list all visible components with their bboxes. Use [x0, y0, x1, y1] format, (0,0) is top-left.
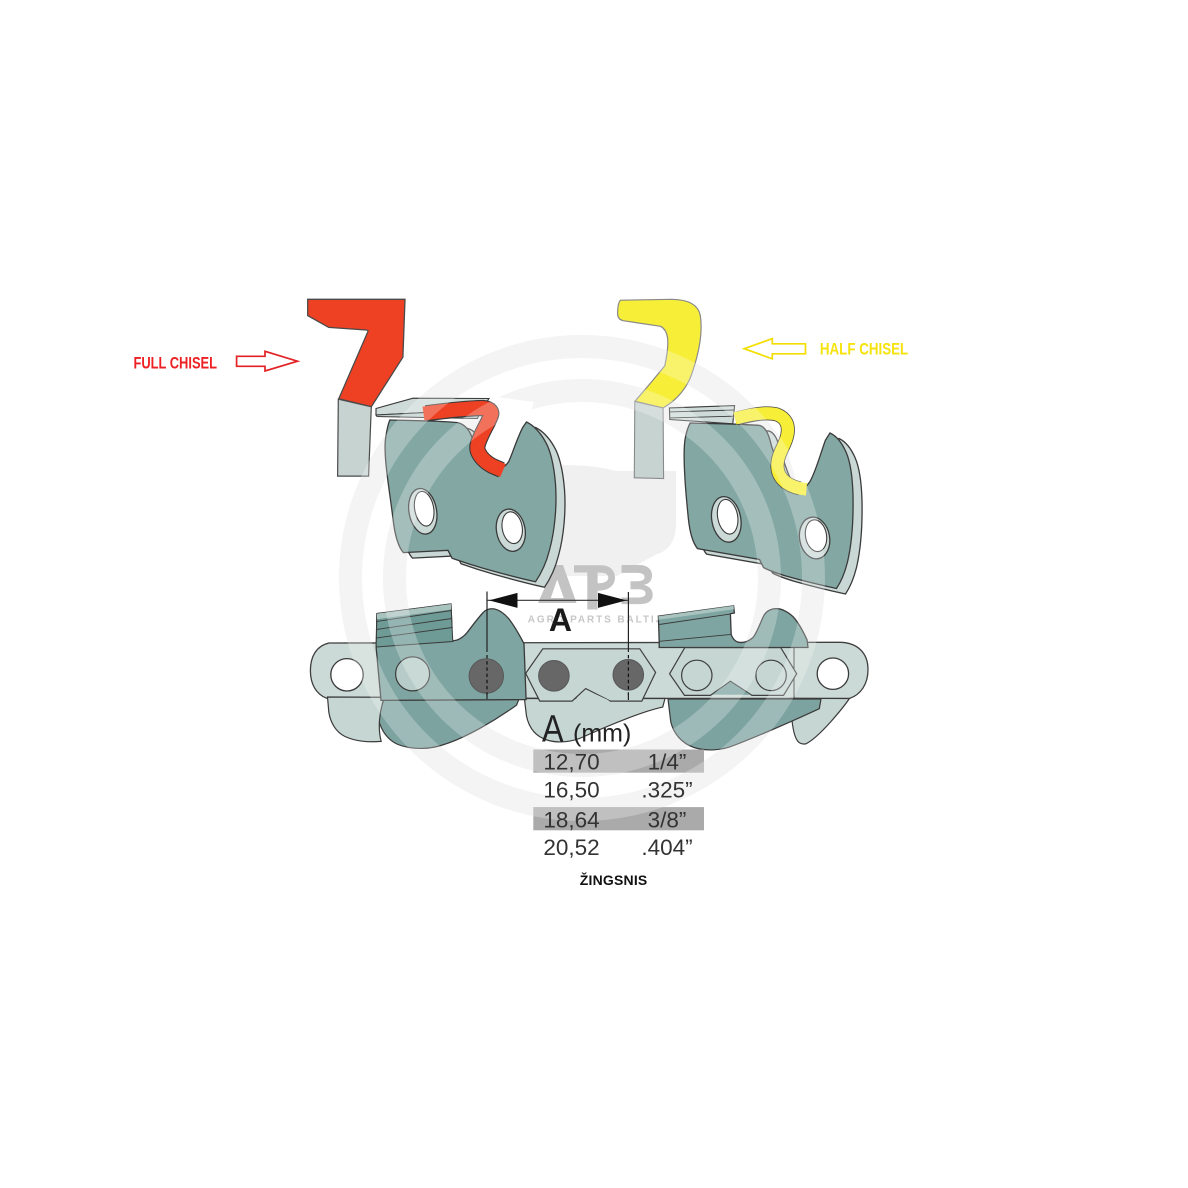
svg-text:A: A: [549, 602, 572, 638]
svg-text:FULL CHISEL: FULL CHISEL: [134, 353, 218, 372]
svg-text:16,50: 16,50: [543, 777, 599, 802]
svg-text:.404”: .404”: [641, 835, 692, 860]
svg-text:.325”: .325”: [641, 777, 692, 802]
svg-text:20,52: 20,52: [543, 835, 599, 860]
svg-text:A: A: [542, 709, 564, 751]
svg-text:HALF CHISEL: HALF CHISEL: [820, 339, 908, 358]
svg-text:ŽINGSNIS: ŽINGSNIS: [580, 871, 648, 888]
svg-text:18,64: 18,64: [543, 807, 599, 832]
svg-text:1/4”: 1/4”: [648, 749, 687, 774]
svg-text:12,70: 12,70: [543, 749, 599, 774]
svg-text:(mm): (mm): [573, 720, 631, 748]
svg-text:3/8”: 3/8”: [648, 807, 687, 832]
